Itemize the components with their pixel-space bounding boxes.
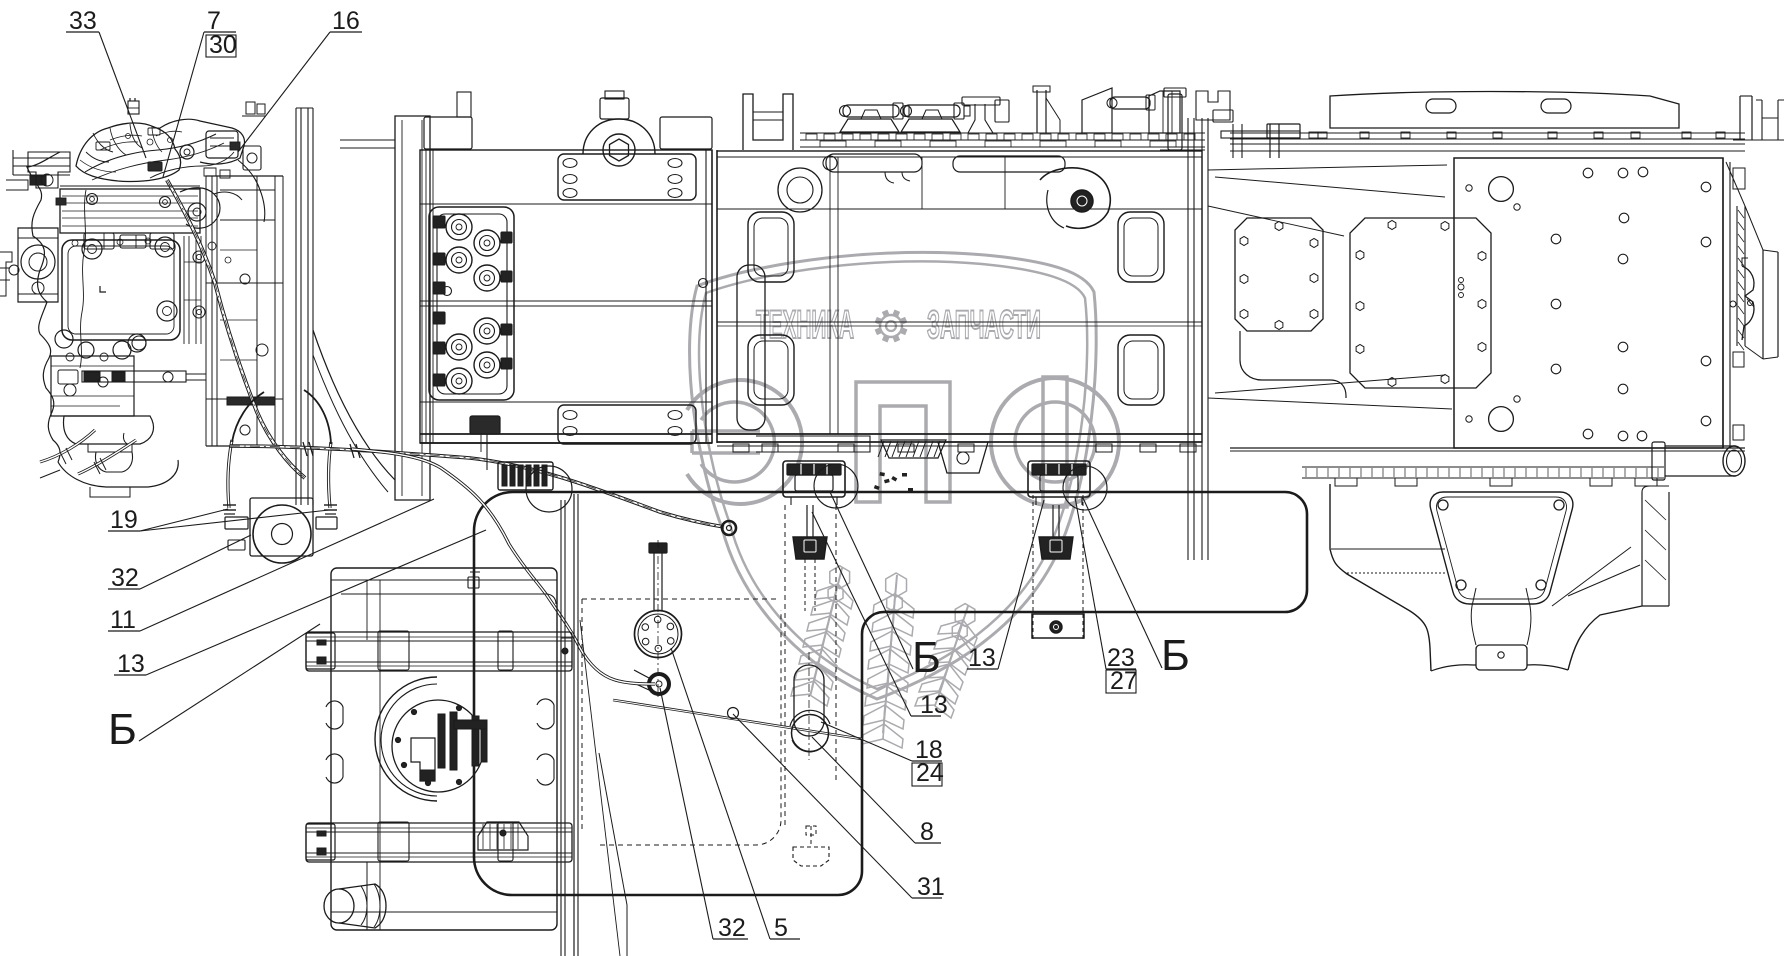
svg-text:13: 13	[117, 650, 145, 678]
svg-text:24: 24	[916, 759, 944, 787]
svg-text:Б: Б	[1161, 631, 1190, 680]
svg-text:ЗАПЧАСТИ: ЗАПЧАСТИ	[927, 303, 1041, 347]
svg-text:32: 32	[718, 914, 746, 942]
svg-text:16: 16	[332, 7, 360, 35]
svg-text:Б: Б	[912, 633, 941, 682]
svg-text:32: 32	[111, 564, 139, 592]
svg-text:13: 13	[968, 644, 996, 672]
svg-text:8: 8	[920, 818, 934, 846]
svg-text:Б: Б	[108, 705, 137, 754]
svg-text:5: 5	[774, 914, 788, 942]
svg-text:ТЕХНИКА: ТЕХНИКА	[756, 303, 854, 347]
svg-text:31: 31	[917, 873, 945, 901]
svg-text:33: 33	[69, 7, 97, 35]
svg-text:30: 30	[209, 31, 237, 59]
svg-text:27: 27	[1110, 667, 1138, 695]
svg-text:13: 13	[920, 691, 948, 719]
svg-text:19: 19	[110, 506, 138, 534]
svg-text:11: 11	[110, 606, 136, 634]
